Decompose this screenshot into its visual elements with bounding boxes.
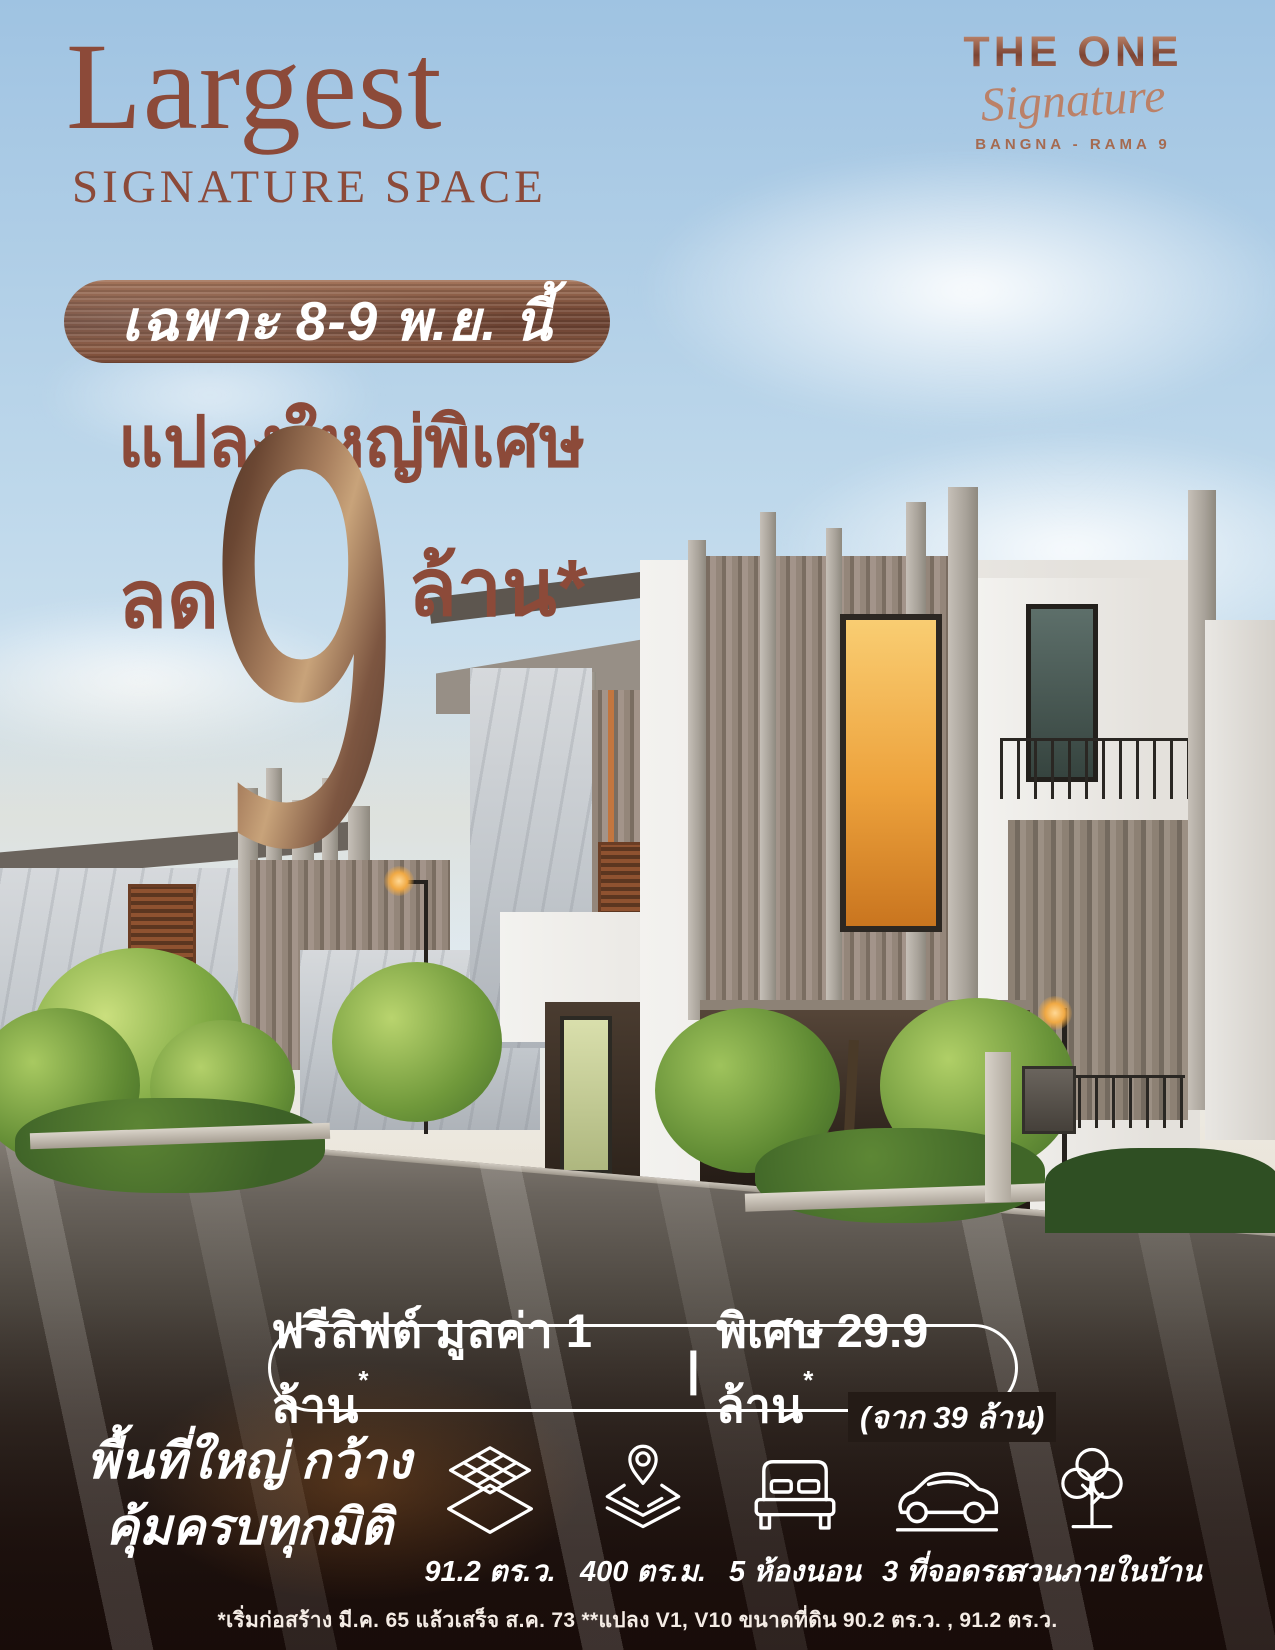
floor-area-icon (405, 1438, 575, 1538)
offer-divider: | (687, 1341, 700, 1396)
feature-tagline: พื้นที่ใหญ่ กว้าง คุ้มครบทุกมิติ (56, 1428, 442, 1560)
far-right-wall (1205, 620, 1275, 1140)
right-glowing-window (840, 614, 942, 932)
discount-number: 9 (202, 368, 409, 928)
land-area-icon (558, 1438, 728, 1538)
page-subtitle: SIGNATURE SPACE (72, 160, 547, 214)
brand-logo: THE ONE Signature BANGNA - RAMA 9 (933, 28, 1213, 153)
feature-land-area: 400 ตร.ม. (558, 1438, 728, 1594)
garden-icon (1007, 1438, 1177, 1538)
brand-logo-location: BANGNA - RAMA 9 (933, 136, 1213, 153)
feature-floor-area: 91.2 ตร.ว. (405, 1438, 575, 1594)
feature-tagline-line1: พื้นที่ใหญ่ กว้าง (56, 1428, 442, 1494)
bedroom-icon (710, 1438, 880, 1538)
offer-left-label: ฟรีลิฟต์ มูลค่า 1 ล้าน (271, 1304, 592, 1432)
entry-glass-panel (560, 1016, 612, 1174)
feature-label: 400 ตร.ม. (558, 1548, 728, 1594)
offer-left-asterisk: * (358, 1365, 368, 1395)
feature-tagline-line2: คุ้มครบทุกมิติ (56, 1494, 442, 1560)
page-title: Largest (66, 16, 443, 158)
mailbox (1022, 1066, 1076, 1134)
cloud (640, 150, 1275, 430)
hedge-row (1045, 1148, 1275, 1233)
feature-label: สวนภายในบ้าน (1007, 1548, 1177, 1594)
legal-footnote: *เริ่มก่อสร้าง มี.ค. 65 แล้วเสร็จ ส.ค. 7… (0, 1604, 1275, 1637)
promo-poster: Largest SIGNATURE SPACE THE ONE Signatur… (0, 0, 1275, 1650)
tree (332, 962, 502, 1122)
discount-suffix: ล้าน* (408, 524, 588, 651)
gate-pillar (985, 1052, 1011, 1202)
offer-right-asterisk: * (803, 1365, 813, 1395)
feature-garden: สวนภายในบ้าน (1007, 1438, 1177, 1594)
offer-original-price-note: (จาก 39 ล้าน) (848, 1392, 1056, 1442)
feature-label: 91.2 ตร.ว. (405, 1548, 575, 1594)
fin-column (688, 540, 706, 1020)
offer-left-text: ฟรีลิฟต์ มูลค่า 1 ล้าน* (271, 1293, 671, 1443)
feature-bedrooms: 5 ห้องนอน (710, 1438, 880, 1594)
feature-label: 5 ห้องนอน (710, 1548, 880, 1594)
balcony-railing (1000, 738, 1200, 799)
